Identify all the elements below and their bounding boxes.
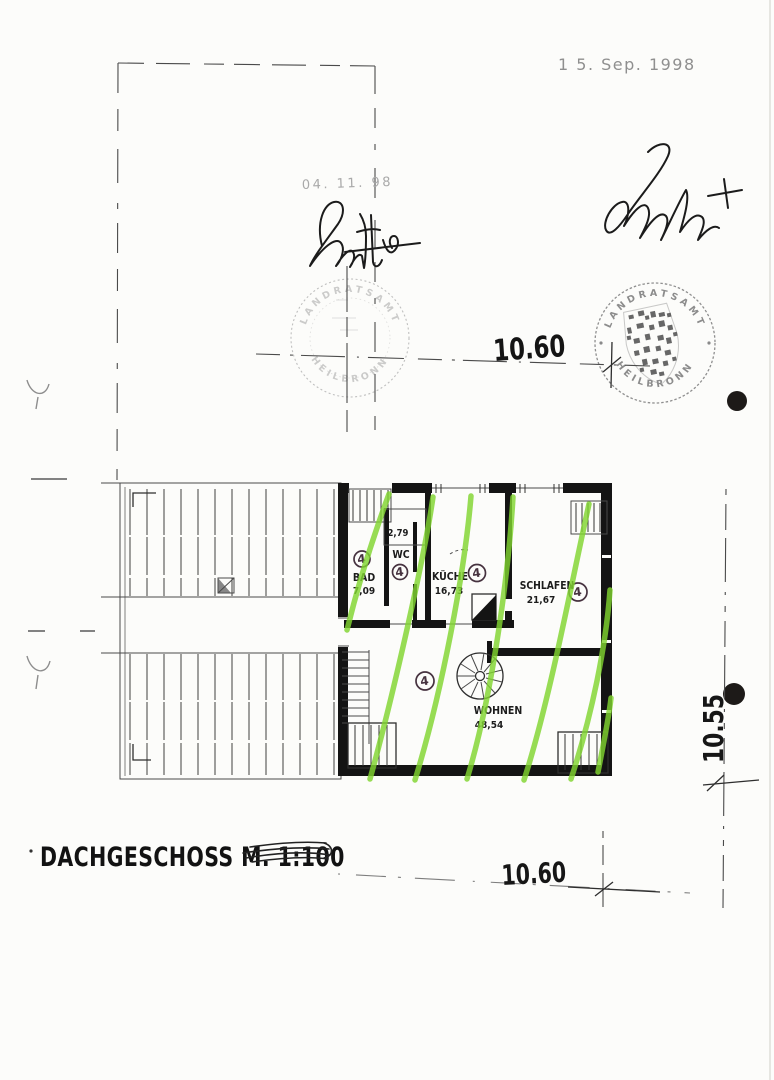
plan-title-block: DACHGESCHOSS M. 1:100 <box>29 841 344 873</box>
received-date-stamp: 1 5. Sep. 1998 <box>558 55 696 74</box>
scanned-plan-page: 1 5. Sep. 1998 04. 11. 98 LANDRATSAMT HE… <box>0 0 774 1080</box>
unit-badge-value: 4 <box>471 566 481 581</box>
shaft-icon <box>472 594 496 620</box>
room-label-schlafen: SCHLAFEN <box>520 581 574 593</box>
dimension-value-top: 10.60 <box>492 329 566 369</box>
dimension-bottom: 10.60 <box>338 831 690 912</box>
unit-badge-wohnen: 4 <box>416 672 434 690</box>
signature-middle <box>310 202 420 268</box>
registry-date-stamp: 04. 11. 98 <box>302 175 394 193</box>
room-label-wc: WC <box>392 550 409 562</box>
roof-section <box>101 483 341 779</box>
seal-arc-top: LANDRATSAMT <box>298 284 402 326</box>
seal-arc-bottom: HEILBRONN <box>309 355 392 386</box>
hole-punch-top <box>727 391 747 411</box>
boundary-dashed-rect <box>117 63 375 480</box>
unit-badge-value: 4 <box>419 674 429 689</box>
roof-hatch-lower <box>130 654 334 775</box>
round-seal-left: LANDRATSAMT HEILBRONN <box>291 279 409 397</box>
plan-canvas: 1 5. Sep. 1998 04. 11. 98 LANDRATSAMT HE… <box>0 0 774 1080</box>
unit-badge-value: 4 <box>394 565 404 580</box>
floor-plan: BAD 7,09 WC 2,79 KÜCHE 16,73 SCHLAFEN 21… <box>101 483 612 780</box>
unit-badge-wc: 4 <box>393 565 408 580</box>
room-area-wc: 2,79 <box>388 527 409 539</box>
room-area-schlafen: 21,67 <box>527 595 555 607</box>
dimension-value-bottom: 10.60 <box>501 855 567 891</box>
seal-arc-top: LANDRATSAMT <box>603 288 708 330</box>
seal-arc-bottom: HEILBRONN <box>614 360 697 391</box>
dimension-right: 10.55 <box>697 489 759 908</box>
window-bottom-left <box>348 723 396 768</box>
dimension-value-right: 10.55 <box>697 694 729 763</box>
signature-top-right <box>605 144 742 240</box>
margin-marks-left <box>27 380 95 689</box>
round-seal-right: LANDRATSAMT HEILBRONN <box>595 283 715 403</box>
unit-badge-kueche: 4 <box>469 565 486 582</box>
